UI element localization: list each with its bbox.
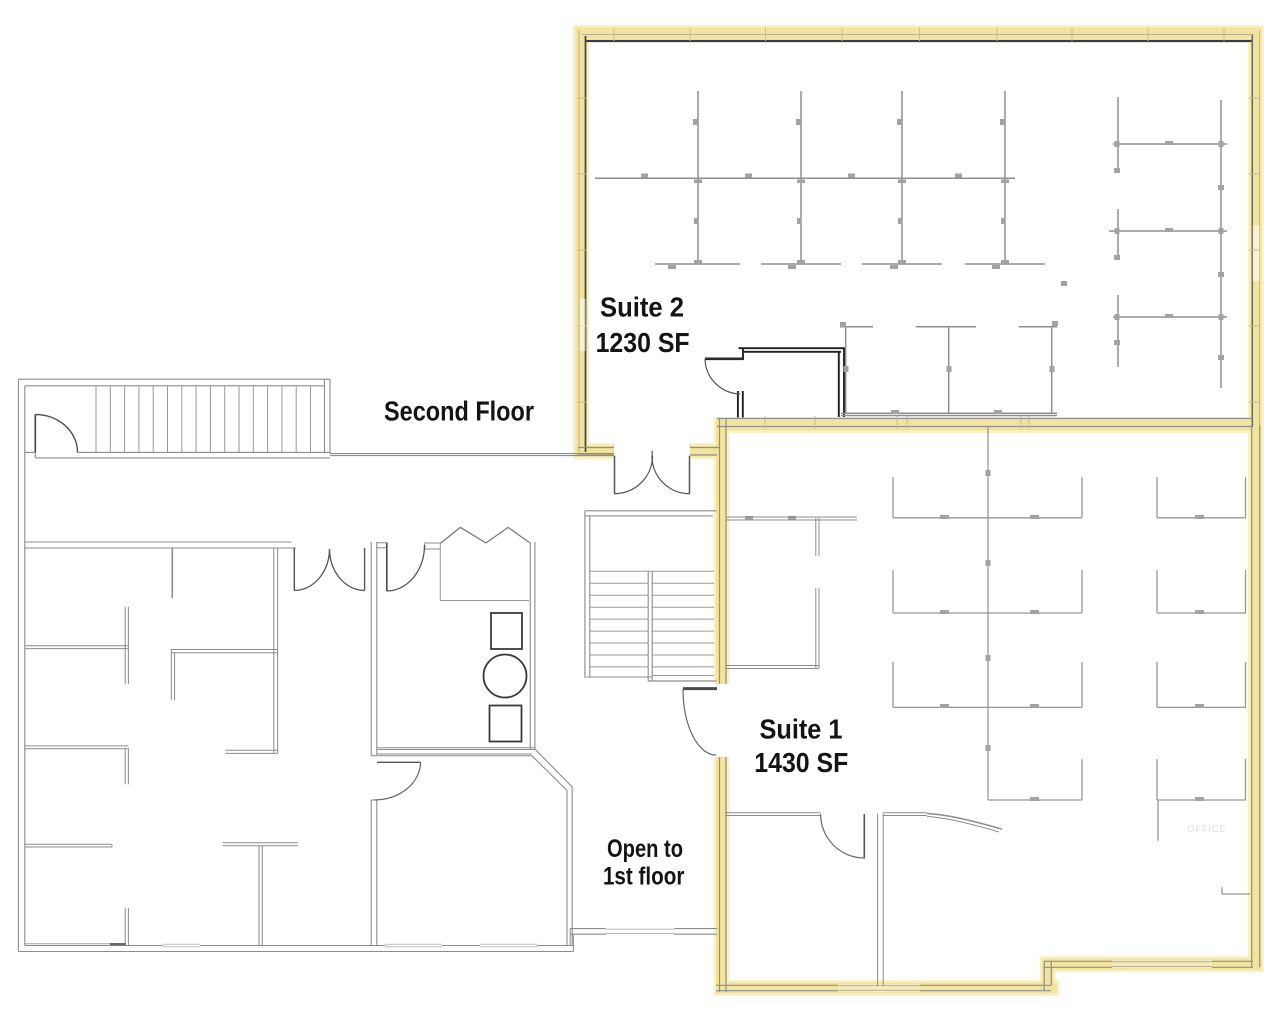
svg-text:Second Floor: Second Floor — [384, 396, 534, 427]
svg-text:Suite 2: Suite 2 — [600, 292, 684, 323]
svg-text:1st floor: 1st floor — [603, 862, 685, 890]
svg-text:OFFICE: OFFICE — [1188, 824, 1227, 834]
svg-text:Open to: Open to — [607, 835, 683, 863]
svg-text:1230 SF: 1230 SF — [596, 327, 690, 358]
svg-text:Suite 1: Suite 1 — [760, 714, 843, 745]
svg-text:1430 SF: 1430 SF — [754, 747, 848, 778]
